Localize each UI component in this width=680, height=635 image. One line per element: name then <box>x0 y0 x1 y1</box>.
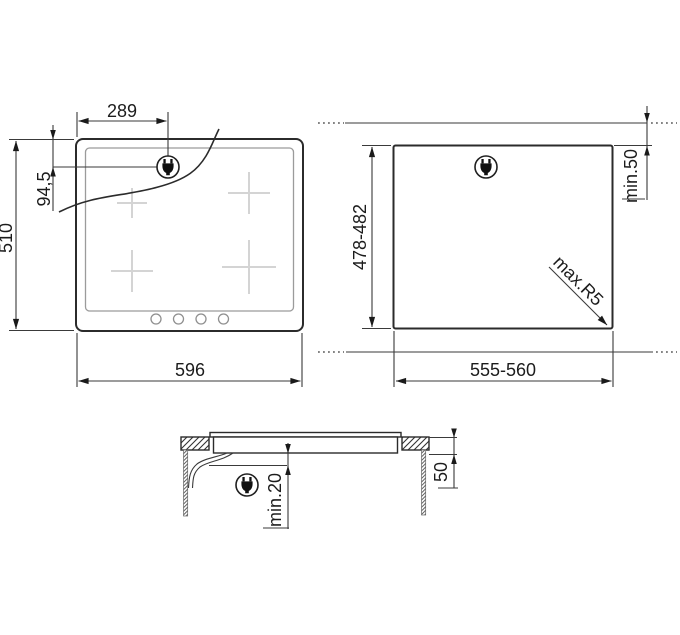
installation-diagram-page: 289 94,5 510 596 min.50 <box>0 0 680 630</box>
hob-top-view: 289 94,5 510 596 <box>0 101 303 387</box>
cutout-top-view: min.50 478-482 max.R5 555-560 <box>318 106 677 387</box>
worktop-left <box>181 437 209 450</box>
control-knob-icon <box>151 314 161 324</box>
arrow-down <box>644 113 650 123</box>
power-plug-icon <box>475 156 497 178</box>
arrow-down <box>451 429 457 438</box>
dim-rear-clearance: min.50 <box>621 149 641 203</box>
cabinet-side-left <box>184 450 188 516</box>
power-plug-icon <box>236 474 258 496</box>
installation-section-view: min.20 50 <box>181 429 458 530</box>
worktop-right <box>402 437 429 450</box>
arrow-up <box>644 146 650 156</box>
dim-cutout-width: 555-560 <box>470 360 536 380</box>
cutout-outline <box>394 146 613 329</box>
control-knob-icon <box>196 314 206 324</box>
control-knob-icon <box>219 314 229 324</box>
power-plug-icon <box>157 156 179 178</box>
dim-plug-offset-x: 289 <box>107 101 137 121</box>
dim-cutout-depth: 478-482 <box>350 204 370 270</box>
arrow-down <box>50 130 56 140</box>
dim-hob-depth: 510 <box>0 223 16 253</box>
hob-body-section <box>214 437 398 453</box>
control-knob-icon <box>174 314 184 324</box>
installation-diagram: 289 94,5 510 596 min.50 <box>0 0 680 630</box>
mains-cable <box>193 453 234 488</box>
dim-bottom-clearance: min.20 <box>265 473 285 527</box>
cabinet-side-right <box>422 450 426 515</box>
arrow-up <box>285 466 291 476</box>
dim-plug-offset-y: 94,5 <box>34 171 54 206</box>
hob-outline <box>76 139 303 331</box>
arrow-up <box>451 455 457 465</box>
dim-recess-depth: 50 <box>431 462 451 482</box>
dim-hob-width: 596 <box>175 360 205 380</box>
